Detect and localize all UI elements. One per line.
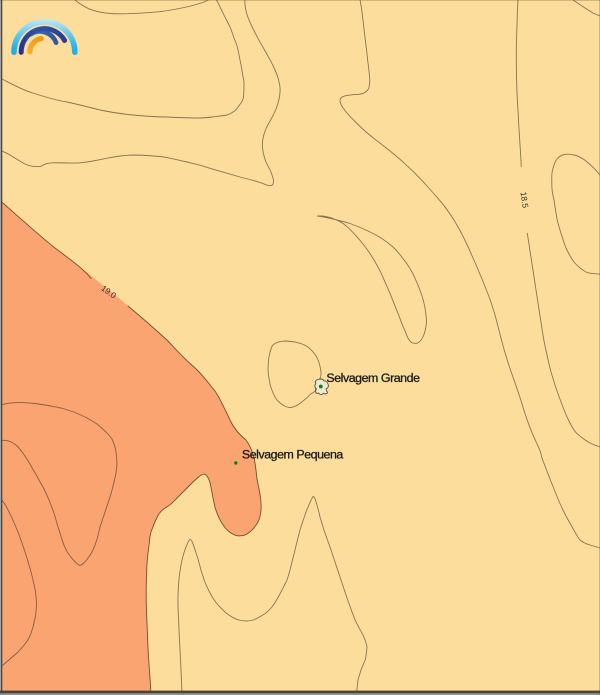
svg-text:18.5: 18.5 — [519, 191, 531, 209]
svg-text:Selvagem Grande: Selvagem Grande — [326, 371, 420, 385]
svg-text:Selvagem Pequena: Selvagem Pequena — [242, 448, 344, 462]
